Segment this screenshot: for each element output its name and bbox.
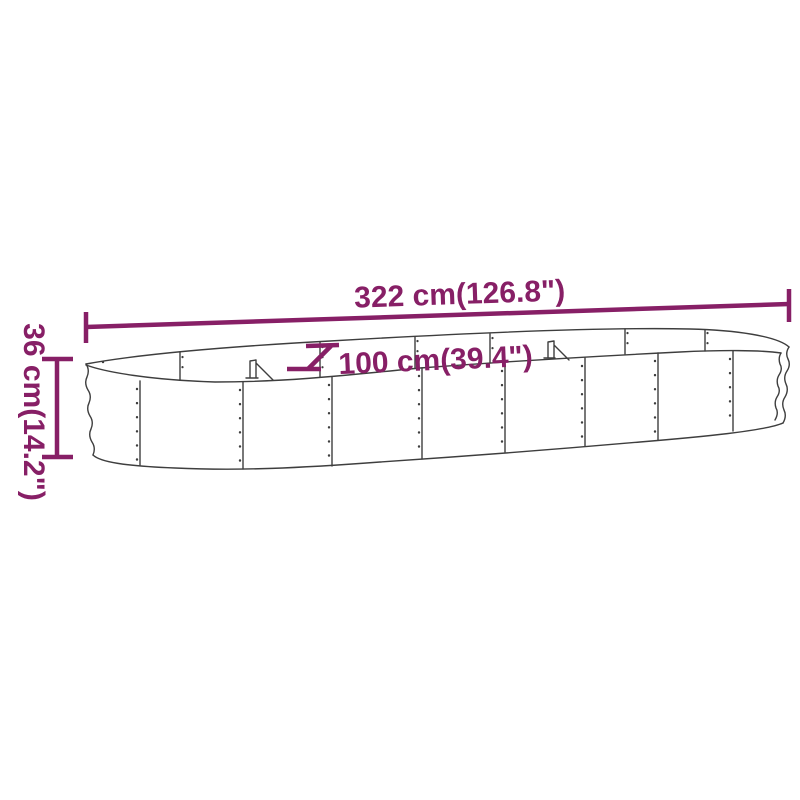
planter-right-corrugated-edge xyxy=(783,347,790,423)
planter-bottom-outline xyxy=(93,423,783,469)
length-dimension: 322 cm(126.8") xyxy=(86,274,789,343)
width-marker-top-bar xyxy=(306,345,339,346)
planter-left-corrugated-edge xyxy=(86,364,95,455)
dimension-annotations: 322 cm(126.8") 100 cm(39.4") 36 cm(14.2"… xyxy=(17,274,789,500)
product-diagram: 322 cm(126.8") 100 cm(39.4") 36 cm(14.2"… xyxy=(0,0,800,800)
width-dim-label: 100 cm(39.4") xyxy=(338,340,534,381)
page-background: 322 cm(126.8") 100 cm(39.4") 36 cm(14.2"… xyxy=(0,0,800,800)
height-dim-label: 36 cm(14.2") xyxy=(17,323,50,501)
bracket-right xyxy=(544,341,569,360)
width-dimension: 100 cm(39.4") xyxy=(287,340,533,381)
length-dim-label: 322 cm(126.8") xyxy=(354,274,566,314)
bracket-left xyxy=(246,360,273,380)
height-dimension: 36 cm(14.2") xyxy=(17,323,73,501)
width-dim-marker xyxy=(287,345,339,369)
planter-right-inner-corrugation xyxy=(775,353,781,420)
